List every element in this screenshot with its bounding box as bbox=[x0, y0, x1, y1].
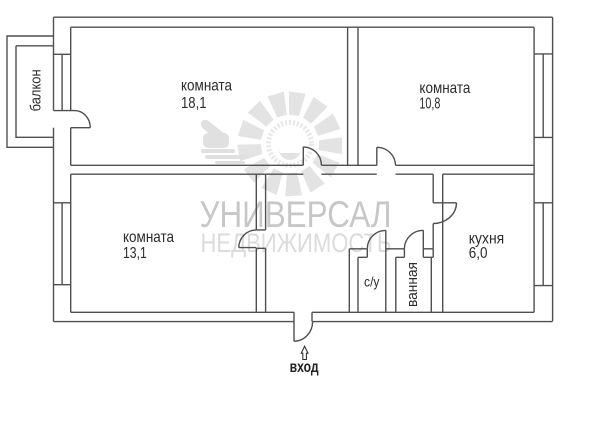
svg-text:комната: комната bbox=[123, 229, 174, 246]
svg-text:комната: комната bbox=[181, 77, 232, 94]
svg-text:вход: вход bbox=[290, 359, 319, 376]
svg-text:10,8: 10,8 bbox=[419, 96, 440, 113]
svg-text:комната: комната bbox=[419, 80, 470, 97]
svg-text:ванная: ванная bbox=[404, 262, 421, 307]
svg-text:с/у: с/у bbox=[364, 274, 380, 290]
svg-text:6,0: 6,0 bbox=[469, 245, 488, 262]
svg-text:18,1: 18,1 bbox=[181, 95, 207, 112]
svg-text:НЕДВИЖИМОСТЬ: НЕДВИЖИМОСТЬ bbox=[201, 228, 392, 258]
svg-text:балкон: балкон bbox=[28, 69, 45, 111]
svg-text:13,1: 13,1 bbox=[123, 245, 147, 262]
